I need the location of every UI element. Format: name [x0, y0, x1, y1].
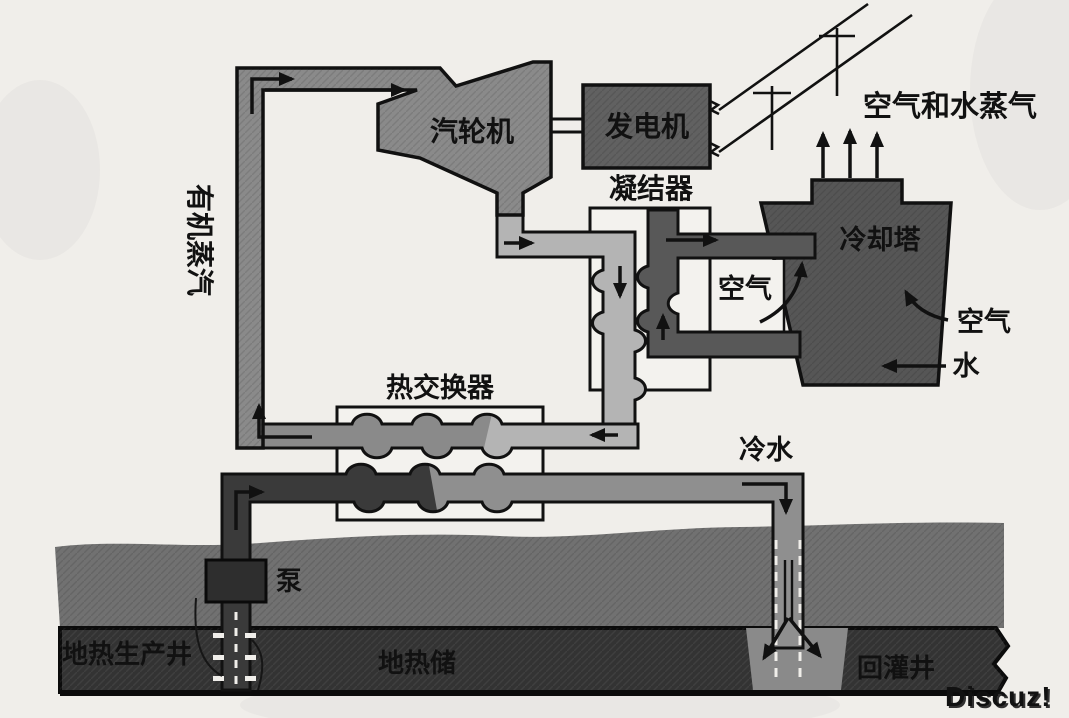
pump-label: 泵: [276, 566, 302, 596]
pump-box: [206, 560, 266, 602]
production-well-label: 地热生产井: [62, 639, 192, 669]
air-left-label: 空气: [718, 273, 772, 304]
cooling-tower-label: 冷却塔: [840, 225, 922, 255]
watermark: Discuz!: [945, 681, 1052, 712]
heat-exchanger-label: 热交换器: [386, 372, 495, 403]
water-label: 水: [953, 351, 981, 381]
organic-vapor-label: 有机蒸汽: [184, 184, 215, 296]
reservoir-label: 地热储: [378, 648, 456, 678]
injection-well-label: 回灌井: [857, 653, 935, 683]
cold-water-label: 冷水: [739, 435, 794, 465]
generator-label: 发电机: [604, 110, 689, 142]
air-right-label: 空气: [957, 306, 1011, 337]
geothermal-plant-diagram: 汽轮机 发电机 凝结器 冷却塔 空气和水蒸气 有机蒸汽 热交换器 空气 空气 水…: [0, 0, 1069, 718]
air-and-steam-label: 空气和水蒸气: [863, 89, 1037, 123]
condenser-label: 凝结器: [609, 173, 694, 204]
diagram-canvas: 汽轮机 发电机 凝结器 冷却塔 空气和水蒸气 有机蒸汽 热交换器 空气 空气 水…: [0, 0, 1069, 718]
turbine-label: 汽轮机: [430, 116, 514, 147]
